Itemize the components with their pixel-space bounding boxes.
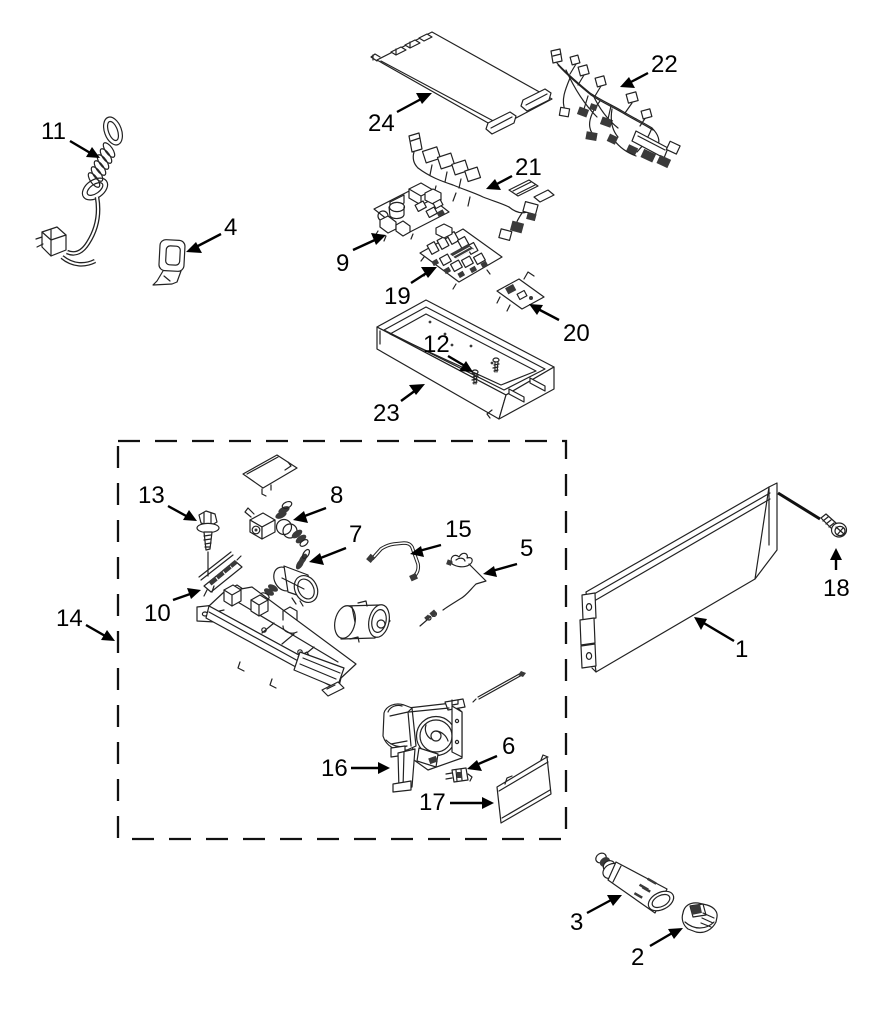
svg-text:4: 4 [224, 214, 237, 241]
svg-text:21: 21 [515, 154, 542, 181]
svg-text:13: 13 [138, 482, 165, 509]
svg-text:14: 14 [56, 605, 83, 632]
svg-text:8: 8 [330, 482, 343, 509]
svg-text:10: 10 [144, 600, 171, 627]
svg-text:16: 16 [321, 755, 348, 782]
svg-text:3: 3 [570, 909, 583, 936]
svg-text:9: 9 [336, 250, 349, 277]
svg-text:6: 6 [502, 733, 515, 760]
svg-text:12: 12 [423, 331, 450, 358]
svg-text:19: 19 [384, 283, 411, 310]
svg-text:23: 23 [373, 400, 400, 427]
svg-text:7: 7 [349, 521, 362, 548]
svg-text:15: 15 [445, 516, 472, 543]
svg-text:1: 1 [735, 636, 748, 663]
svg-text:22: 22 [651, 51, 678, 78]
svg-text:5: 5 [520, 535, 533, 562]
svg-text:24: 24 [368, 110, 395, 137]
svg-text:17: 17 [419, 789, 446, 816]
svg-text:18: 18 [823, 575, 850, 602]
svg-text:20: 20 [563, 320, 590, 347]
svg-text:2: 2 [631, 944, 644, 971]
svg-text:11: 11 [41, 118, 66, 145]
